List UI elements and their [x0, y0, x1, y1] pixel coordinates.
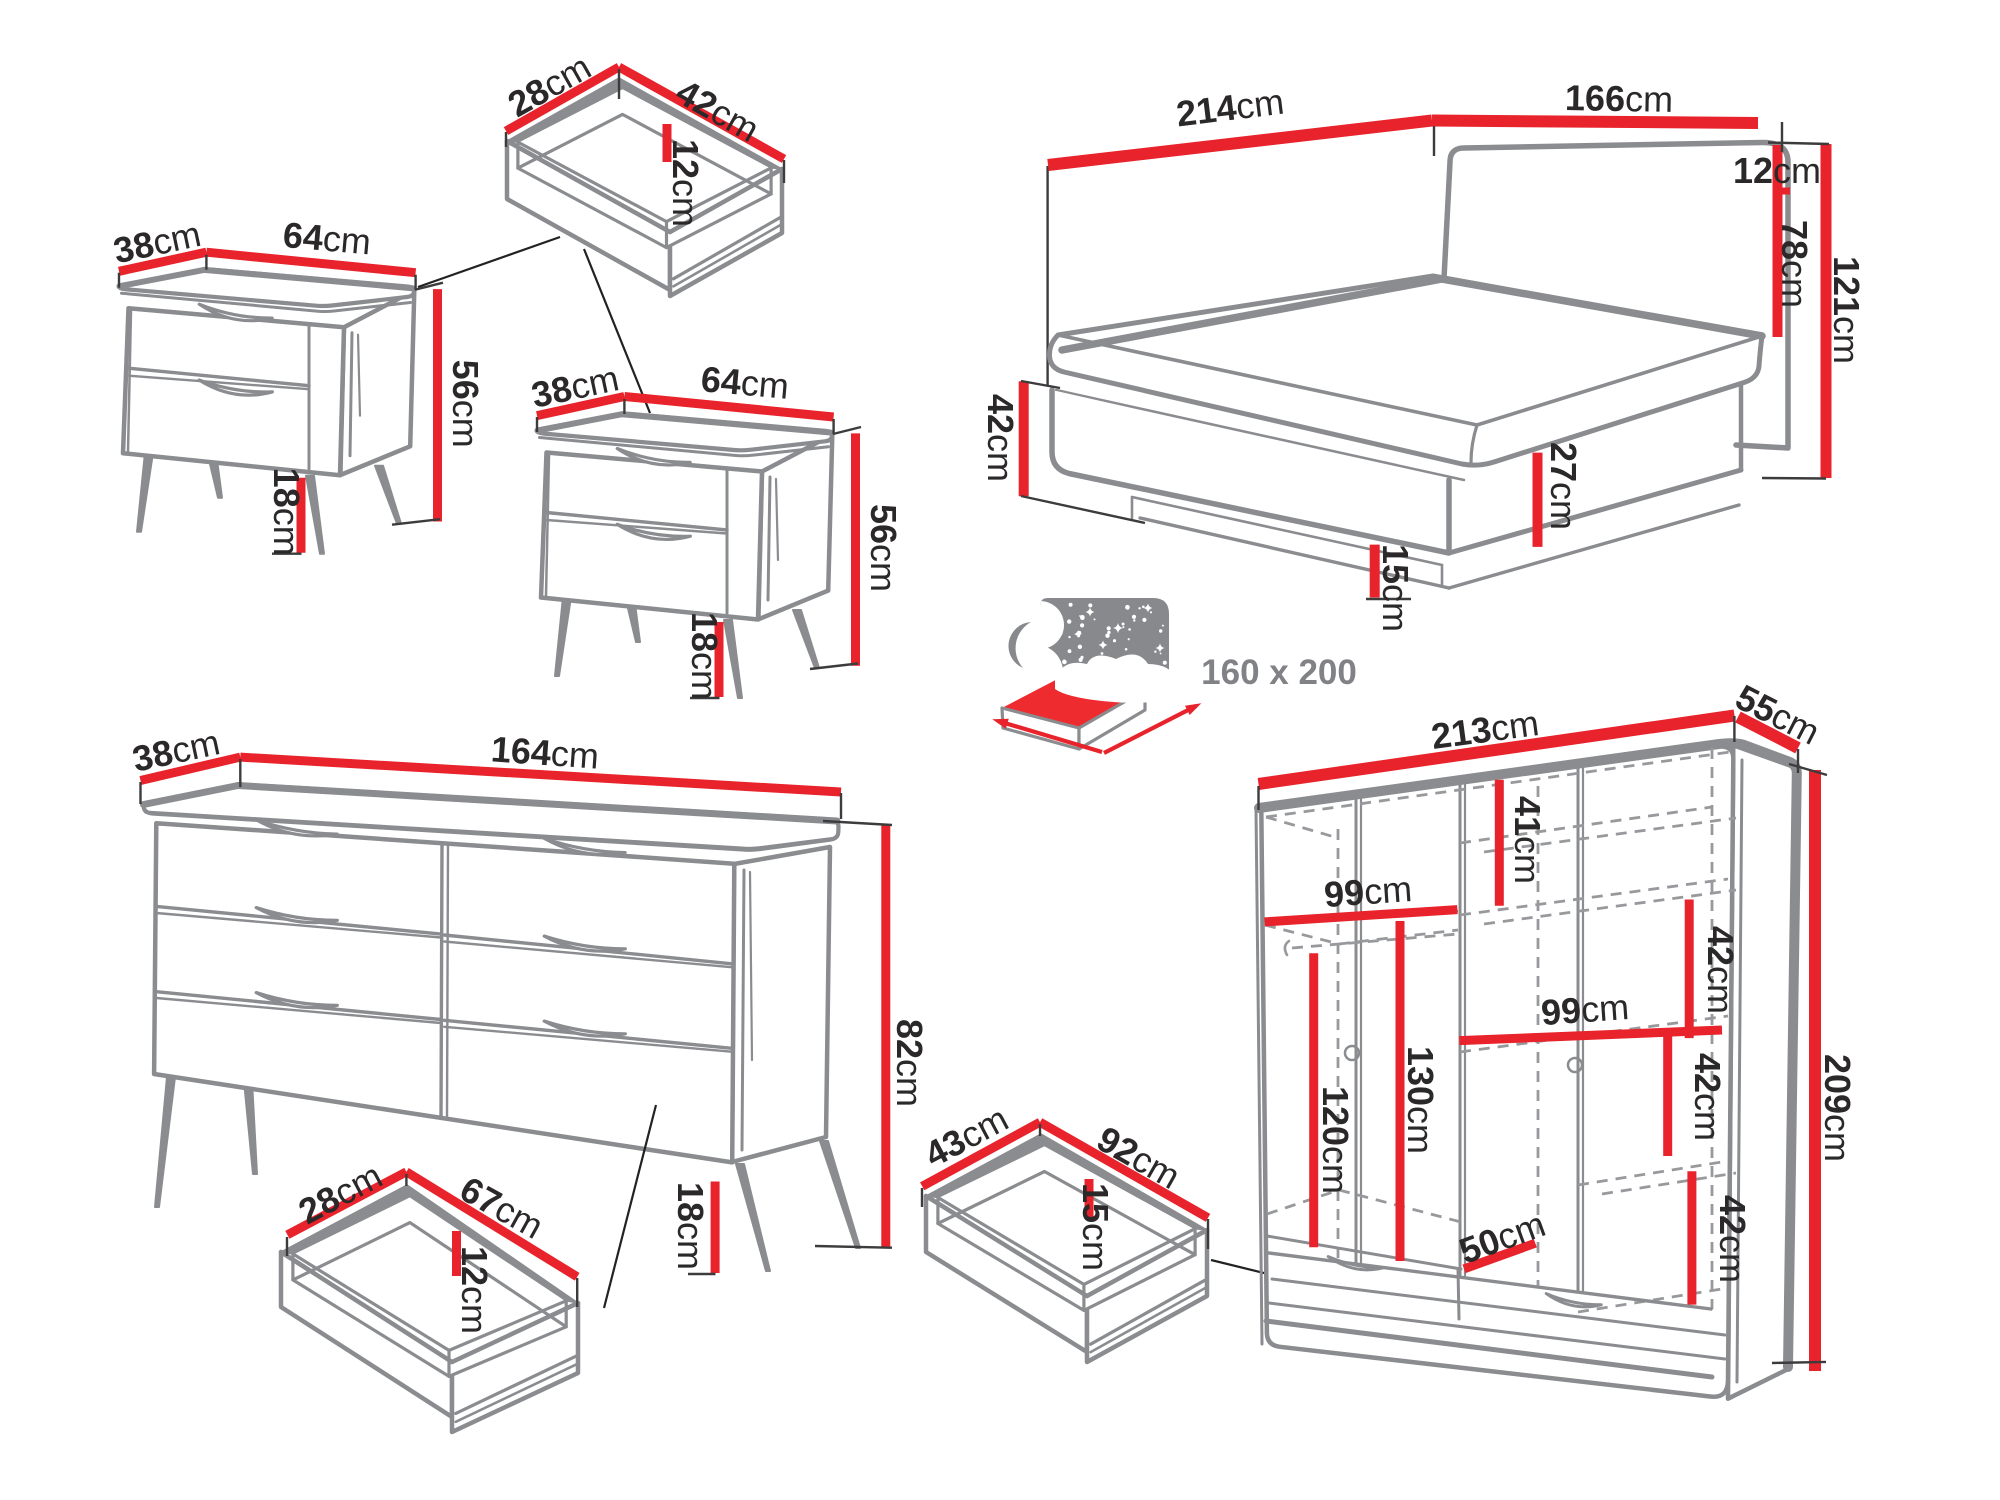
- svg-text:209cm: 209cm: [1817, 1054, 1858, 1162]
- svg-text:160 x 200: 160 x 200: [1201, 653, 1357, 692]
- svg-text:82cm: 82cm: [889, 1019, 930, 1107]
- svg-text:27cm: 27cm: [1543, 442, 1584, 530]
- svg-text:130cm: 130cm: [1400, 1046, 1441, 1154]
- svg-text:18cm: 18cm: [670, 1182, 711, 1270]
- svg-text:42cm: 42cm: [1700, 926, 1741, 1014]
- svg-text:99cm: 99cm: [1323, 868, 1414, 915]
- svg-text:121cm: 121cm: [1826, 256, 1867, 364]
- svg-text:15cm: 15cm: [1375, 544, 1416, 632]
- svg-text:164cm: 164cm: [490, 728, 601, 776]
- svg-text:120cm: 120cm: [1315, 1086, 1356, 1194]
- svg-text:42cm: 42cm: [1687, 1053, 1728, 1141]
- svg-text:15cm: 15cm: [1075, 1183, 1116, 1271]
- svg-text:78cm: 78cm: [1774, 220, 1815, 308]
- svg-text:99cm: 99cm: [1540, 986, 1631, 1033]
- svg-text:18cm: 18cm: [684, 612, 725, 700]
- svg-text:42cm: 42cm: [1712, 1195, 1753, 1283]
- svg-text:12cm: 12cm: [665, 139, 706, 227]
- svg-text:56cm: 56cm: [863, 504, 904, 592]
- svg-text:42cm: 42cm: [980, 394, 1021, 482]
- svg-text:12cm: 12cm: [454, 1246, 495, 1334]
- svg-text:41cm: 41cm: [1507, 796, 1548, 884]
- svg-text:12cm: 12cm: [1733, 150, 1821, 191]
- svg-text:56cm: 56cm: [445, 360, 486, 448]
- svg-text:64cm: 64cm: [281, 214, 372, 263]
- svg-text:18cm: 18cm: [266, 468, 307, 556]
- svg-text:166cm: 166cm: [1565, 77, 1674, 120]
- svg-text:64cm: 64cm: [699, 358, 790, 407]
